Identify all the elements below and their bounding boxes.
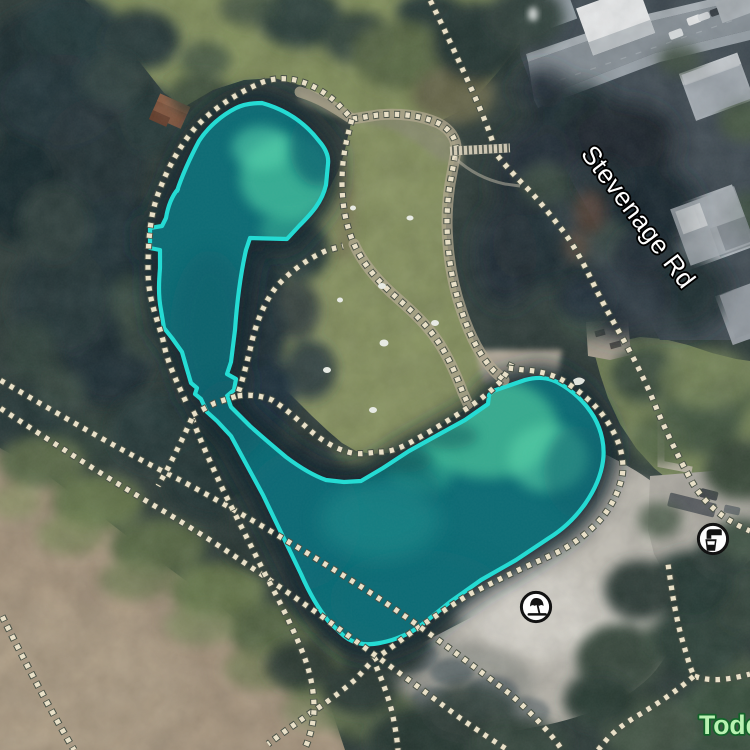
svg-text:Toddl: Toddl bbox=[699, 710, 750, 740]
